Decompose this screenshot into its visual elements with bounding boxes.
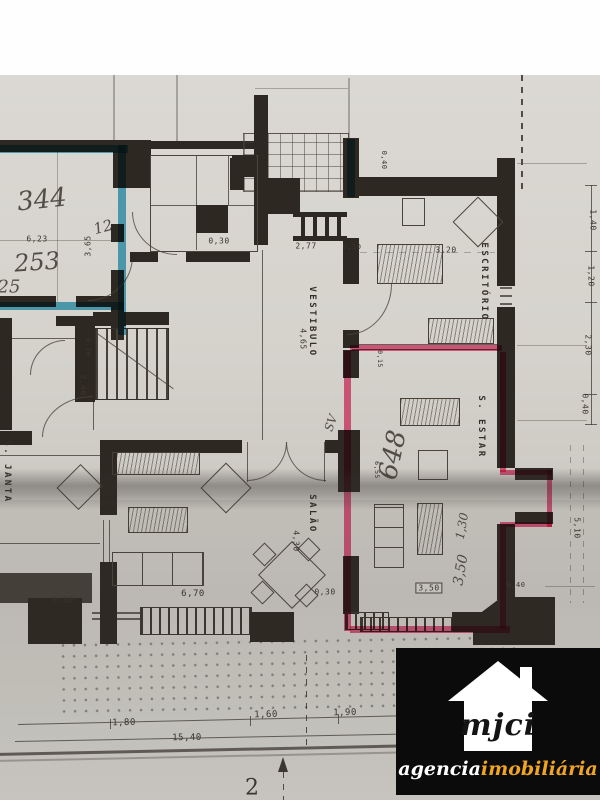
plan-line	[176, 75, 178, 141]
agency-logo: mjci agenciaimobiliária	[396, 648, 600, 795]
plan-line	[0, 455, 100, 456]
entry-grill	[325, 214, 329, 238]
plan-line	[348, 78, 350, 140]
pink-highlight	[350, 345, 502, 351]
furniture-outline	[418, 450, 448, 480]
wall-segment	[150, 141, 254, 149]
wall-segment	[350, 177, 515, 196]
plan-line	[517, 345, 587, 346]
window-line	[103, 520, 104, 562]
section-line	[306, 655, 307, 745]
plan-line	[570, 445, 571, 603]
dimension-tick	[250, 716, 251, 726]
plan-line	[262, 250, 263, 440]
entry-grill	[301, 214, 305, 238]
plan-line	[57, 152, 58, 302]
furniture-hatch	[428, 318, 494, 344]
wall-segment	[93, 312, 169, 325]
wall-segment	[232, 155, 256, 177]
wall-segment	[28, 598, 82, 644]
dimension-tick	[585, 185, 597, 186]
window-line	[500, 303, 512, 305]
plan-line	[545, 586, 595, 587]
window-line	[500, 295, 512, 297]
logo-brand-text: mjci	[446, 708, 550, 743]
dimension-line	[591, 185, 592, 425]
pink-highlight	[547, 470, 552, 527]
logo-tagline-agencia: agencia	[398, 758, 481, 780]
floorplan-photo: ESCRITÓRIOVESTIBULOS. ESTARSALÃOS. JANTA…	[0, 0, 600, 800]
blue-highlight	[347, 139, 355, 197]
furniture-outline	[374, 504, 404, 568]
wall-segment	[0, 431, 32, 445]
pink-highlight	[500, 522, 552, 527]
dimension-tick	[585, 394, 597, 395]
wall-segment	[75, 326, 95, 402]
dimension-tick	[338, 714, 339, 724]
pink-highlight	[344, 351, 351, 631]
furniture-hatch	[400, 398, 460, 426]
wall-segment	[0, 318, 12, 430]
section-line	[283, 772, 284, 800]
furniture-outline	[402, 198, 425, 226]
wall-segment	[343, 238, 359, 284]
dimension-tick	[585, 251, 597, 252]
wall-segment	[250, 612, 294, 642]
blue-highlight	[0, 145, 128, 153]
staircase	[95, 328, 169, 400]
dimension-tick	[585, 302, 597, 303]
furniture-hatch	[128, 507, 188, 533]
window-line	[109, 520, 110, 562]
logo-tagline-imobiliaria: imobiliária	[481, 758, 598, 780]
wall-segment	[196, 205, 228, 233]
plan-line	[517, 420, 587, 421]
window-hatch	[140, 607, 252, 635]
pink-highlight	[500, 352, 506, 472]
wall-segment	[186, 252, 250, 262]
plan-line	[521, 75, 523, 193]
wall-segment	[262, 178, 300, 214]
window-line	[500, 287, 512, 289]
section-arrow	[278, 757, 288, 772]
top-white-strip	[0, 0, 600, 75]
logo-tagline: agenciaimobiliária	[396, 758, 600, 780]
dimension-tick	[585, 424, 597, 425]
dimension-tick	[110, 719, 111, 729]
pink-highlight	[500, 470, 552, 475]
wall-segment	[130, 252, 158, 262]
plan-line	[113, 75, 115, 141]
furniture-hatch	[377, 244, 443, 284]
blue-highlight	[0, 302, 124, 310]
entry-grill	[337, 214, 341, 238]
plan-line	[583, 445, 584, 603]
pink-highlight	[500, 527, 506, 629]
entry-grill	[313, 214, 317, 238]
furniture-hatch	[112, 452, 200, 475]
pink-highlight	[350, 626, 510, 633]
plan-line	[0, 543, 100, 544]
furniture-hatch	[417, 503, 443, 555]
furniture-outline	[112, 552, 204, 586]
plan-line	[517, 163, 587, 164]
plan-line	[0, 240, 112, 241]
plan-line	[255, 88, 348, 89]
